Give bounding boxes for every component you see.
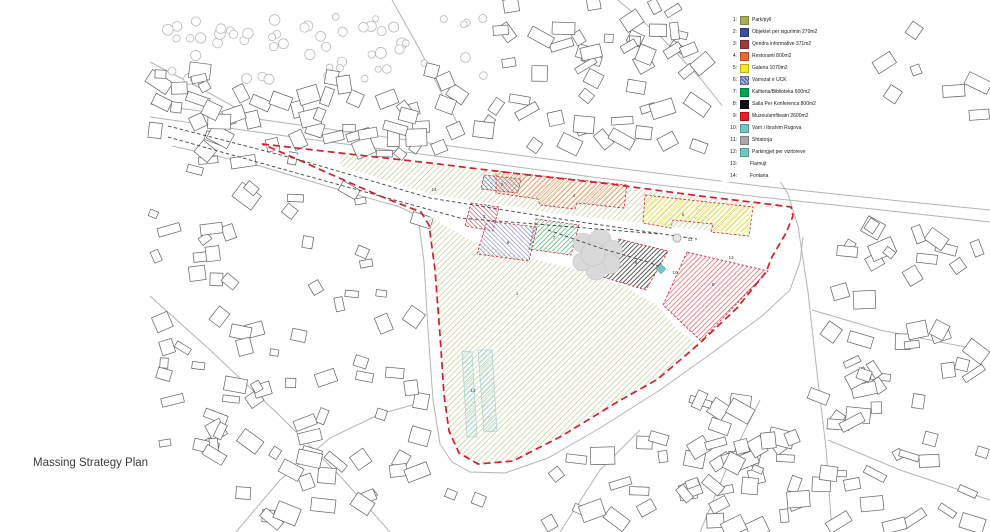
legend-item-label: Varri i Ibrahim Rugova bbox=[752, 126, 801, 131]
map-zone-label: 1 bbox=[516, 291, 519, 296]
legend-item-label: Fontana bbox=[750, 174, 768, 179]
legend-item-number: 5: bbox=[722, 66, 737, 71]
map-zone-label: 2 bbox=[501, 182, 504, 187]
legend-color-swatch bbox=[740, 100, 749, 109]
legend-item-label: Kafiteria/Biblioteka 600m2 bbox=[752, 90, 810, 95]
legend-item-number: 10: bbox=[722, 126, 737, 131]
legend-item-number: 14: bbox=[722, 174, 737, 179]
legend-item-label: Parkingjet per vizitoreve bbox=[752, 150, 805, 155]
legend-item: 7:Kafiteria/Biblioteka 600m2 bbox=[722, 86, 840, 98]
legend-item: 9:Muzeu/amfiteatri 2600m2 bbox=[722, 110, 840, 122]
map-zone-label: 14 bbox=[431, 187, 437, 192]
legend-item-number: 8: bbox=[722, 102, 737, 107]
legend-item: 4:Restoranti 800m2 bbox=[722, 50, 840, 62]
legend-color-swatch bbox=[740, 64, 749, 73]
caption: Massing Strategy Plan bbox=[33, 457, 148, 469]
trees-layer bbox=[162, 13, 487, 84]
map-zone-label: 13 bbox=[728, 255, 734, 260]
legend-item-label: Varrezat e UCK bbox=[752, 78, 787, 83]
legend-item-number: 9: bbox=[722, 114, 737, 119]
legend-item: 3:Qendra informative 371m2 bbox=[722, 38, 840, 50]
legend-color-swatch bbox=[740, 40, 749, 49]
legend-color-swatch bbox=[740, 136, 749, 145]
legend-color-swatch bbox=[740, 173, 747, 180]
legend-item-label: Salla Per Konferenca 800m2 bbox=[752, 102, 816, 107]
legend-color-swatch bbox=[740, 112, 749, 121]
legend-color-swatch bbox=[740, 76, 749, 85]
legend-item-label: Flamujt bbox=[750, 162, 766, 167]
legend-item: 6:Varrezat e UCK bbox=[722, 74, 840, 86]
legend-item-label: Restoranti 800m2 bbox=[752, 54, 791, 59]
legend-color-swatch bbox=[740, 124, 749, 133]
map-zone-label: 5 bbox=[682, 212, 685, 217]
legend-item-number: 7: bbox=[722, 90, 737, 95]
legend-item: 10:Varri i Ibrahim Rugova bbox=[722, 122, 840, 134]
map-zone-label: 8 bbox=[635, 260, 638, 265]
legend-item: 12:Parkingjet per vizitoreve bbox=[722, 146, 840, 158]
map-zone-label: 10 bbox=[672, 270, 678, 275]
legend: 1:Park/pyll2:Objektet per sigurimin 270m… bbox=[722, 14, 840, 182]
legend-item: 2:Objektet per sigurimin 270m2 bbox=[722, 26, 840, 38]
legend-item: 13:Flamujt bbox=[722, 158, 840, 170]
legend-color-swatch bbox=[740, 16, 749, 25]
map-zone-label: 11 bbox=[688, 237, 693, 242]
legend-item-label: Park/pyll bbox=[752, 18, 771, 23]
legend-item: 11:Shtatorja bbox=[722, 134, 840, 146]
legend-item: 14:Fontana bbox=[722, 170, 840, 182]
map-zone-label: 6 bbox=[507, 240, 510, 245]
slide: 1234567891011121314 1:Park/pyll2:Objekte… bbox=[0, 0, 990, 532]
legend-item-label: Muzeu/amfiteatri 2600m2 bbox=[752, 114, 808, 119]
legend-item-number: 13: bbox=[722, 162, 737, 167]
legend-color-swatch bbox=[740, 28, 749, 37]
legend-item: 8:Salla Per Konferenca 800m2 bbox=[722, 98, 840, 110]
map-zone-label: 9 bbox=[712, 282, 715, 287]
legend-item-label: Shtatorja bbox=[752, 138, 772, 143]
legend-item-number: 2: bbox=[722, 30, 737, 35]
legend-item-number: 3: bbox=[722, 42, 737, 47]
map-zone-label: 12 bbox=[470, 388, 476, 393]
legend-item-number: 6: bbox=[722, 78, 737, 83]
legend-item-label: Galeria 1070m2 bbox=[752, 66, 788, 71]
map-zone-label: 7 bbox=[553, 235, 556, 240]
legend-item-number: 1: bbox=[722, 18, 737, 23]
legend-color-swatch bbox=[740, 88, 749, 97]
legend-color-swatch bbox=[740, 52, 749, 61]
legend-item: 1:Park/pyll bbox=[722, 14, 840, 26]
legend-item-label: Objektet per sigurimin 270m2 bbox=[752, 30, 817, 35]
legend-color-swatch bbox=[740, 161, 747, 168]
legend-item-number: 4: bbox=[722, 54, 737, 59]
legend-item-label: Qendra informative 371m2 bbox=[752, 42, 811, 47]
legend-color-swatch bbox=[740, 148, 749, 157]
legend-item-number: 12: bbox=[722, 150, 737, 155]
legend-item: 5:Galeria 1070m2 bbox=[722, 62, 840, 74]
site-plan-map: 1234567891011121314 bbox=[0, 0, 990, 532]
map-zone-label: 4 bbox=[573, 193, 576, 198]
legend-item-number: 11: bbox=[722, 138, 737, 143]
map-zone-label: 3 bbox=[483, 214, 486, 219]
